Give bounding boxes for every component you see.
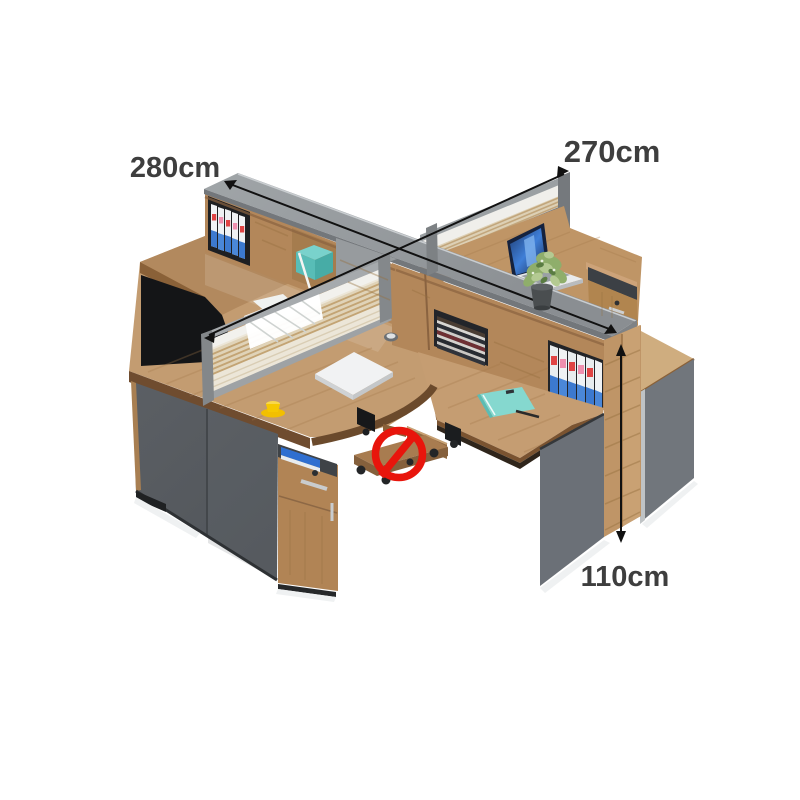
svg-text:110cm: 110cm	[581, 561, 670, 593]
svg-text:280cm: 280cm	[130, 152, 220, 184]
svg-text:270cm: 270cm	[564, 134, 661, 169]
